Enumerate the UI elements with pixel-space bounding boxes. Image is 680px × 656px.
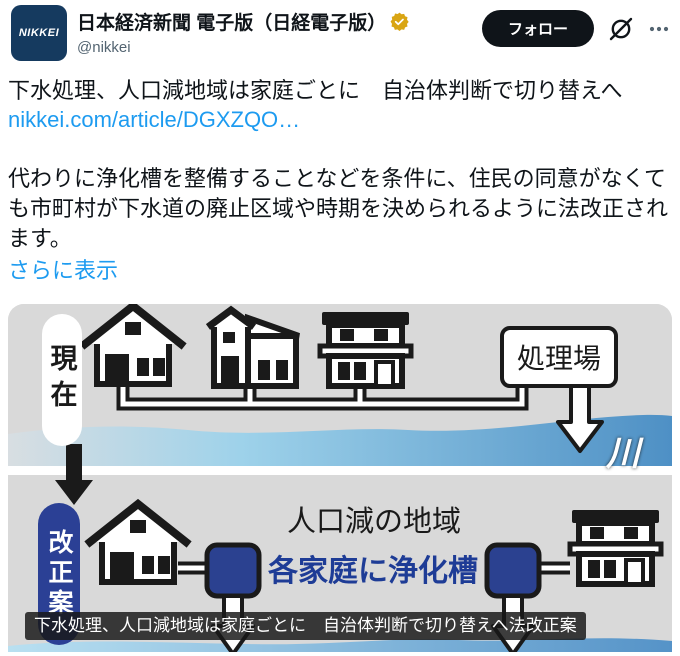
header-actions: フォロー [482,5,670,47]
account-block: 日本経済新聞 電子版（日経電子版） @nikkei [77,5,409,56]
more-icon[interactable] [648,18,670,40]
tweet-body: 代わりに浄化槽を整備することなどを条件に、住民の同意がなくても市町村が下水道の廃… [8,164,672,254]
section-divider [8,466,672,475]
river-label: 川 [606,426,640,475]
account-name[interactable]: 日本経済新聞 電子版（日経電子版） [77,8,386,35]
follow-button[interactable]: フォロー [482,10,594,47]
area-label: 人口減の地域 [258,498,490,540]
proposal-label: 改正案 [41,529,77,619]
avatar-logo-text: NIKKEI [19,27,59,39]
avatar[interactable]: NIKKEI [11,5,67,61]
tweet-header: NIKKEI 日本経済新聞 電子版（日経電子版） @nikkei フォロー [0,0,680,61]
article-link[interactable]: nikkei.com/article/DGXZQO… [8,106,672,134]
current-label-pill: 現在 [42,314,82,446]
tweet-media-image[interactable]: 現在 改正案 処理場 川 人口減の地域 各家庭に浄化槽 下水処理、人口減地域は家… [8,304,672,652]
show-more-link[interactable]: さらに表示 [8,256,672,286]
image-caption: 下水処理、人口減地域は家庭ごとに 自治体判断で切り替えへ法改正案 [25,612,586,640]
treatment-plant-label: 処理場 [517,337,601,377]
current-label: 現在 [43,344,82,416]
tweet-content: 下水処理、人口減地域は家庭ごとに 自治体判断で切り替えへ nikkei.com/… [0,76,680,652]
account-handle[interactable]: @nikkei [77,39,409,56]
tweet-headline: 下水処理、人口減地域は家庭ごとに 自治体判断で切り替えへ [8,76,672,106]
septic-label: 各家庭に浄化槽 [250,546,496,590]
treatment-plant-box: 処理場 [500,326,618,388]
grok-icon[interactable] [608,16,634,42]
tweet-card: NIKKEI 日本経済新聞 電子版（日経電子版） @nikkei フォロー [0,0,680,656]
gold-verified-icon [390,12,409,31]
